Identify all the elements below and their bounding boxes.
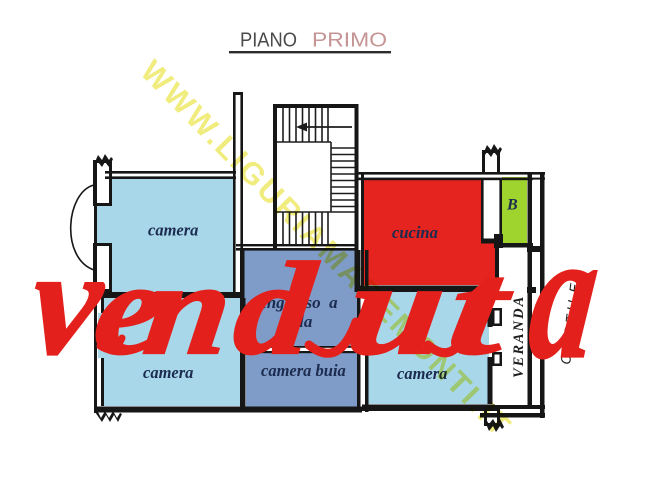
svg-text:PRIMO: PRIMO <box>312 29 387 52</box>
svg-text:u: u <box>340 235 453 381</box>
svg-text:PIANO: PIANO <box>240 29 297 52</box>
svg-text:B: B <box>506 197 518 214</box>
svg-text:n: n <box>137 235 239 381</box>
